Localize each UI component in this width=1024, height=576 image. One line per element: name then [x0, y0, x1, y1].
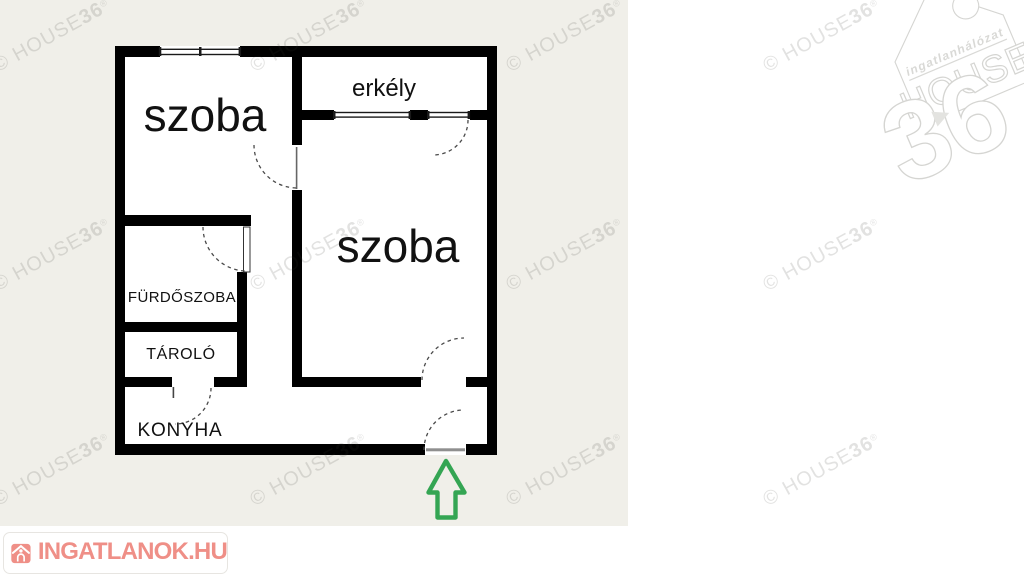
- ingatlanok-logo-card: INGATLANOK.HU: [3, 532, 228, 574]
- ingatlanok-house-icon: [11, 538, 31, 569]
- screenshot-root: szoba erkély szoba FÜRDŐSZOBA TÁROLÓ KON…: [0, 0, 1024, 576]
- room-label-szoba-1: szoba: [144, 89, 267, 141]
- room-label-erkely: erkély: [352, 75, 416, 102]
- floor-plan-image: szoba erkély szoba FÜRDŐSZOBA TÁROLÓ KON…: [0, 0, 1024, 576]
- room-label-szoba-2: szoba: [337, 220, 460, 272]
- room-label-tarolo: TÁROLÓ: [146, 344, 215, 363]
- room-label-furdoszoba: FÜRDŐSZOBA: [128, 288, 236, 306]
- ingatlanok-logo-text: INGATLANOK.HU: [38, 540, 227, 566]
- entrance-door: [425, 444, 466, 455]
- room-label-konyha: KONYHA: [137, 420, 222, 441]
